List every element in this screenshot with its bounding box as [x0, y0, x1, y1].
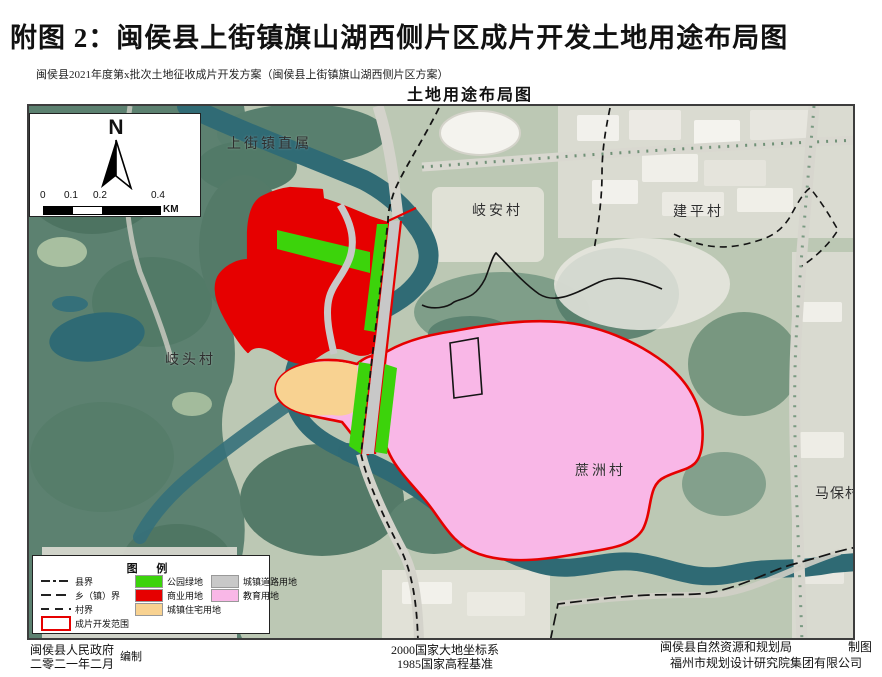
red-outline-swatch-icon	[41, 616, 71, 631]
legend-item-development-extent: 成片开发范围	[41, 616, 129, 630]
village-label-qian: 岐安村	[472, 200, 523, 220]
dash-line-icon	[41, 608, 71, 610]
village-label-qitou: 岐头村	[165, 349, 216, 369]
legend-box: 图 例 县界 乡（镇）界 村界 成片开发范围 公园绿地	[32, 555, 270, 634]
north-arrow-icon	[88, 138, 144, 190]
village-label-mabao: 马保村	[815, 483, 855, 503]
legend-item-residential: 城镇住宅用地	[135, 602, 221, 616]
legend-label: 县界	[75, 575, 93, 588]
map-canvas: 上街镇直属 岐安村 建平村 岐头村 蔗洲村 马保村 N 0 0.1 0.2 0.…	[27, 104, 855, 640]
town-label-shangjiezhen: 上街镇直属	[227, 133, 312, 153]
red-swatch-icon	[135, 589, 163, 602]
cartography-bureau: 闽侯县自然资源和规划局	[660, 640, 792, 654]
legend-item-urban-road: 城镇道路用地	[211, 574, 297, 588]
legend-label: 城镇住宅用地	[167, 603, 221, 616]
gray-swatch-icon	[211, 575, 239, 588]
scale-tick: 0.2	[93, 190, 107, 201]
legend-label: 村界	[75, 603, 93, 616]
legend-item-county-boundary: 县界	[41, 574, 129, 588]
height-datum: 1985国家高程基准	[360, 657, 530, 671]
legend-item-village-boundary: 村界	[41, 602, 129, 616]
village-label-zhezhou: 蔗洲村	[575, 460, 626, 480]
footer-cartography: 闽侯县自然资源和规划局 制图 福州市规划设计研究院集团有限公司	[660, 640, 872, 670]
north-label: N	[88, 116, 144, 140]
design-institute: 福州市规划设计研究院集团有限公司	[660, 656, 872, 670]
scale-unit-label: KM	[163, 204, 179, 215]
legend-label: 成片开发范围	[75, 617, 129, 630]
north-scale-box: N 0 0.1 0.2 0.4 KM	[29, 113, 201, 217]
green-swatch-icon	[135, 575, 163, 588]
coordinate-system: 2000国家大地坐标系	[360, 643, 530, 657]
pink-swatch-icon	[211, 589, 239, 602]
legend-item-education: 教育用地	[211, 588, 297, 602]
longdash-line-icon	[41, 594, 71, 596]
scale-tick-labels: 0 0.1 0.2 0.4	[38, 190, 198, 202]
legend-label: 城镇道路用地	[243, 575, 297, 588]
page-title: 附图 2：闽侯县上街镇旗山湖西侧片区成片开发土地用途布局图	[10, 16, 788, 55]
cartography-role: 制图	[848, 640, 872, 654]
compiler-name: 闽侯县人民政府	[30, 643, 114, 657]
scale-tick: 0.4	[151, 190, 165, 201]
scale-bar	[43, 206, 161, 215]
village-label-jianping: 建平村	[673, 201, 724, 221]
legend-item-town-boundary: 乡（镇）界	[41, 588, 129, 602]
plan-subtitle: 闽侯县2021年度第x批次土地征收成片开发方案（闽侯县上街镇旗山湖西侧片区方案）	[36, 66, 449, 82]
map-title: 土地用途布局图	[0, 81, 882, 105]
legend-label: 教育用地	[243, 589, 279, 602]
legend-label: 公园绿地	[167, 575, 203, 588]
legend-label: 乡（镇）界	[75, 589, 120, 602]
footer-compiler: 闽侯县人民政府 二零二一年二月 编制	[30, 643, 142, 671]
orange-swatch-icon	[135, 603, 163, 616]
legend-item-park-green: 公园绿地	[135, 574, 221, 588]
legend-label: 商业用地	[167, 589, 203, 602]
scale-tick: 0.1	[64, 190, 78, 201]
compiler-role: 编制	[120, 650, 142, 664]
legend-item-commercial: 商业用地	[135, 588, 221, 602]
footer-datum: 2000国家大地坐标系 1985国家高程基准	[360, 643, 530, 671]
scale-tick: 0	[40, 190, 46, 201]
dashdot-line-icon	[41, 580, 71, 582]
compile-date: 二零二一年二月	[30, 657, 114, 671]
